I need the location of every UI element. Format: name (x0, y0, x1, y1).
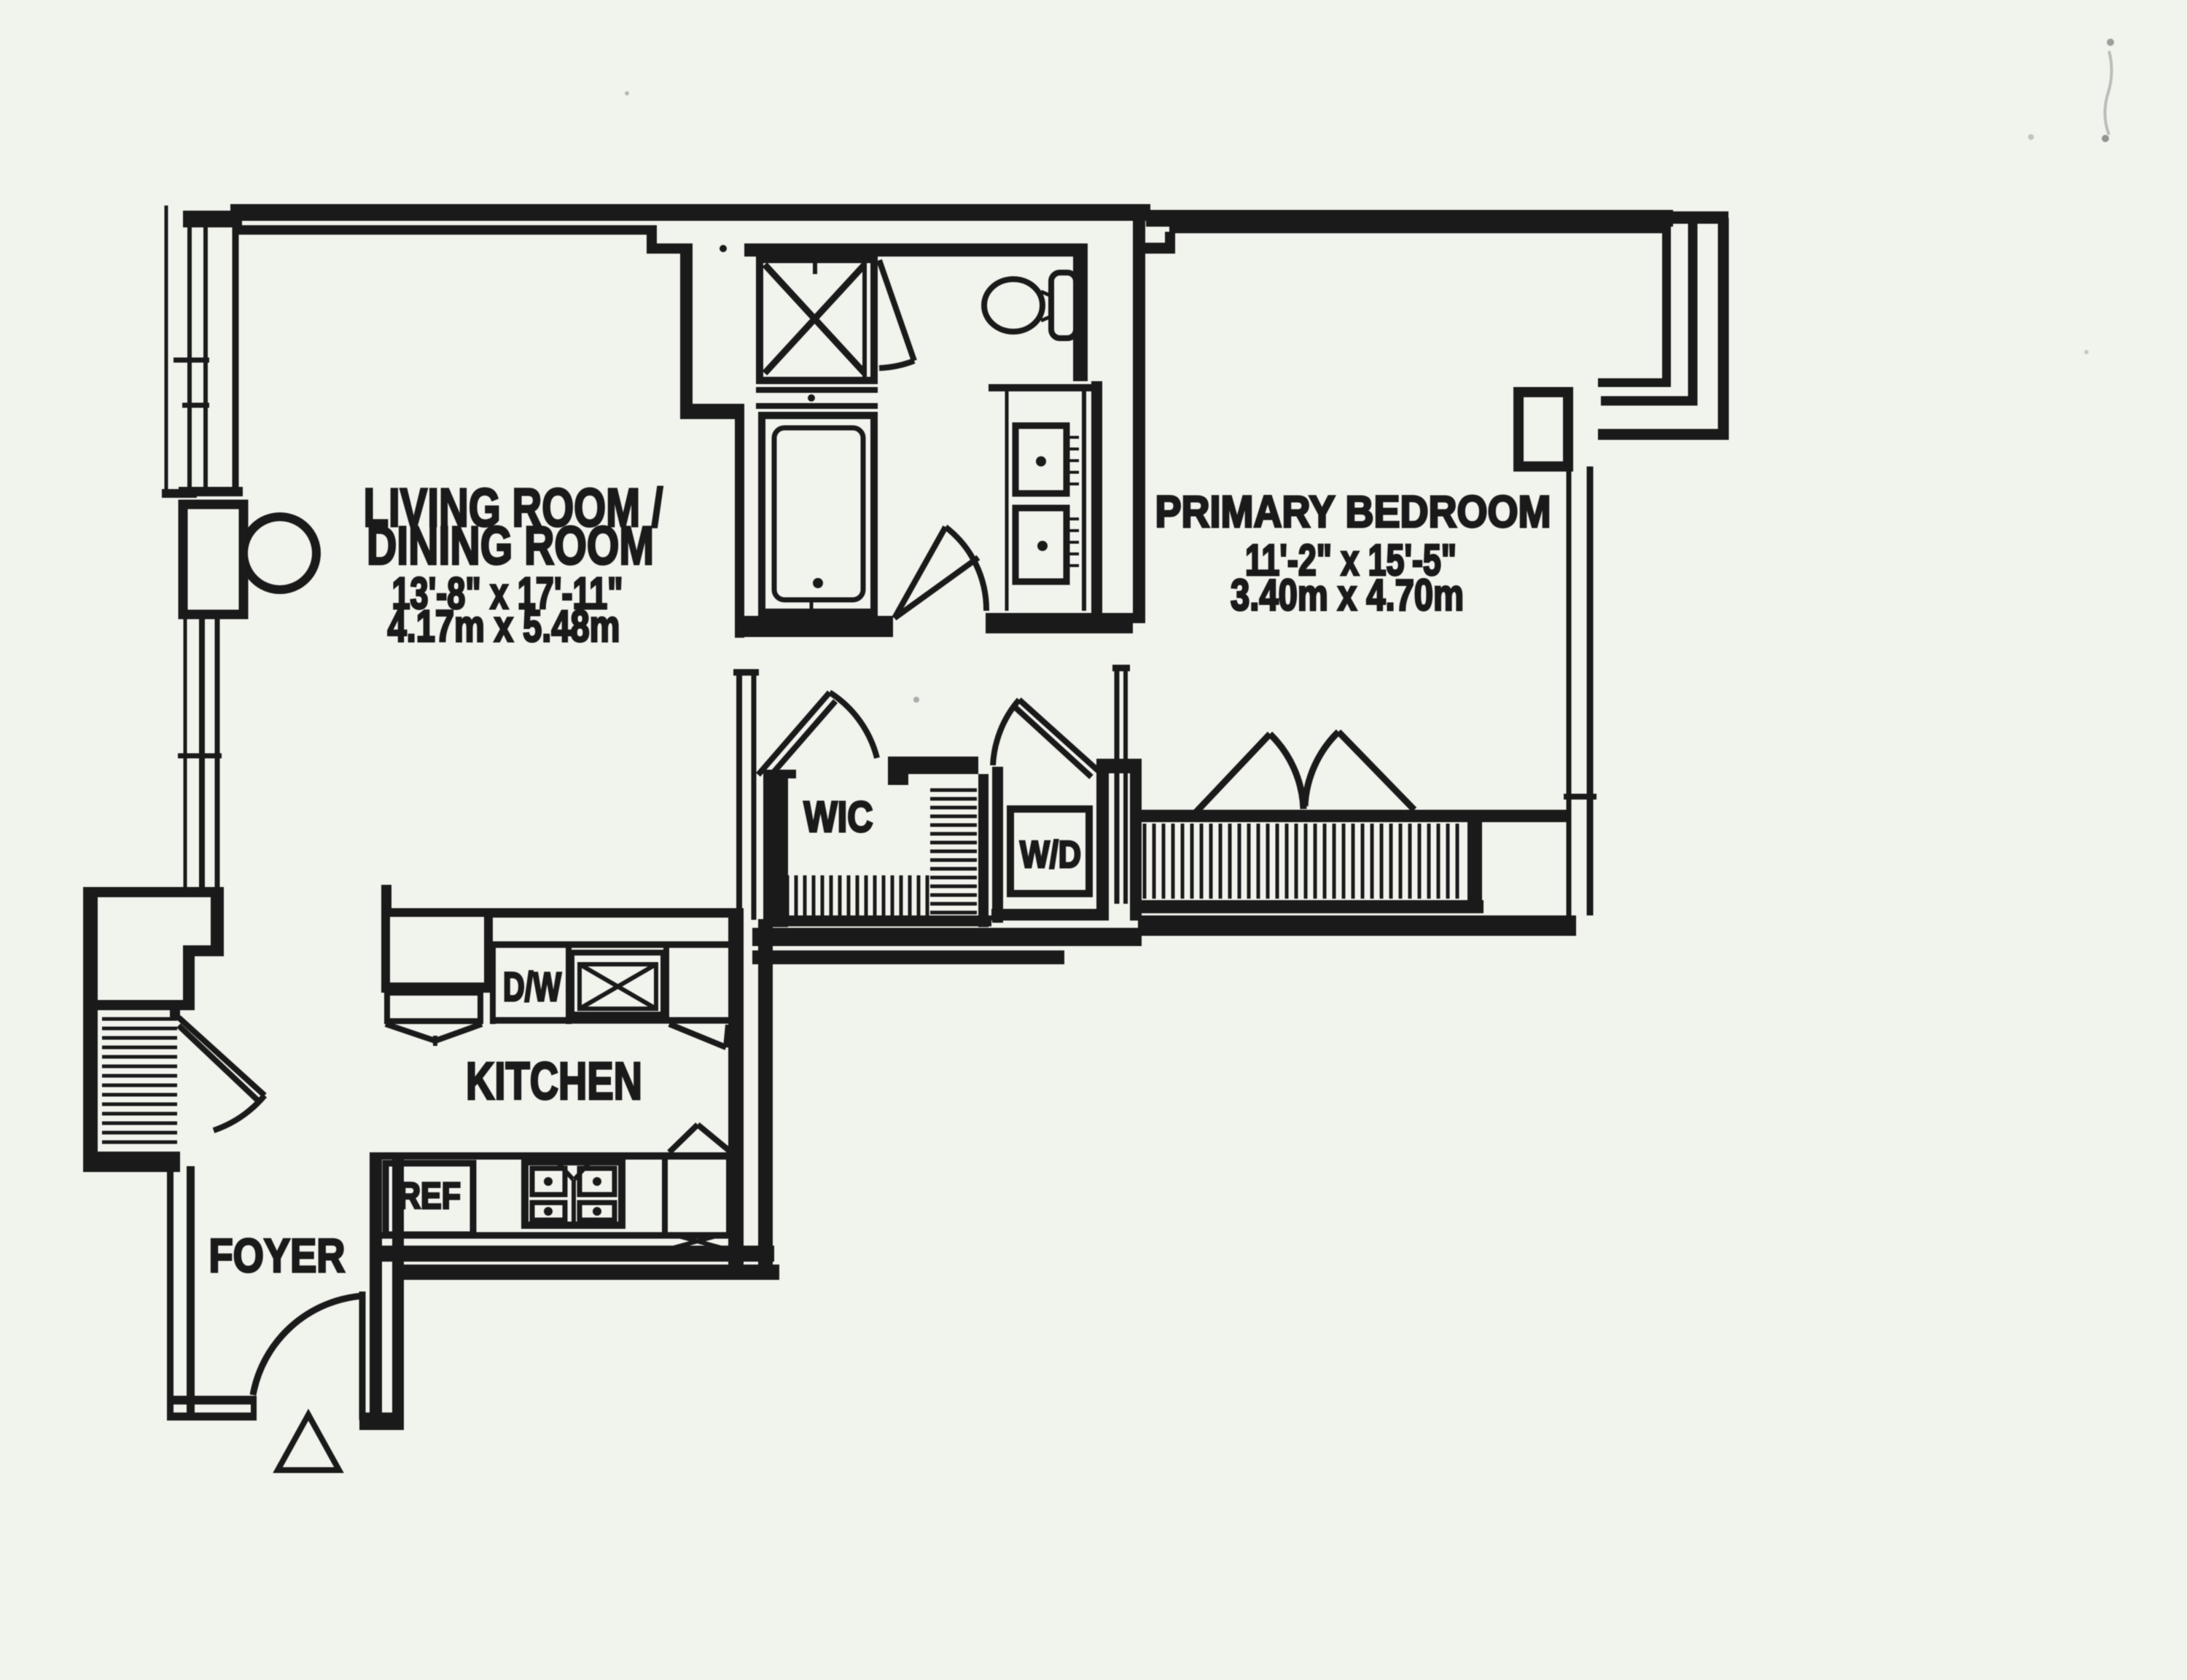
svg-text:KITCHEN: KITCHEN (466, 1052, 642, 1111)
svg-text:W/D: W/D (1020, 834, 1081, 876)
svg-text:3.40m x 4.70m: 3.40m x 4.70m (1231, 571, 1464, 620)
svg-text:FOYER: FOYER (209, 1229, 346, 1282)
svg-text:D/W: D/W (503, 964, 561, 1009)
svg-text:4.17m x 5.48m: 4.17m x 5.48m (388, 601, 620, 651)
svg-text:DINING ROOM: DINING ROOM (367, 515, 654, 576)
svg-text:REF: REF (398, 1175, 461, 1216)
svg-text:PRIMARY BEDROOM: PRIMARY BEDROOM (1155, 487, 1551, 536)
svg-text:WIC: WIC (804, 793, 873, 841)
